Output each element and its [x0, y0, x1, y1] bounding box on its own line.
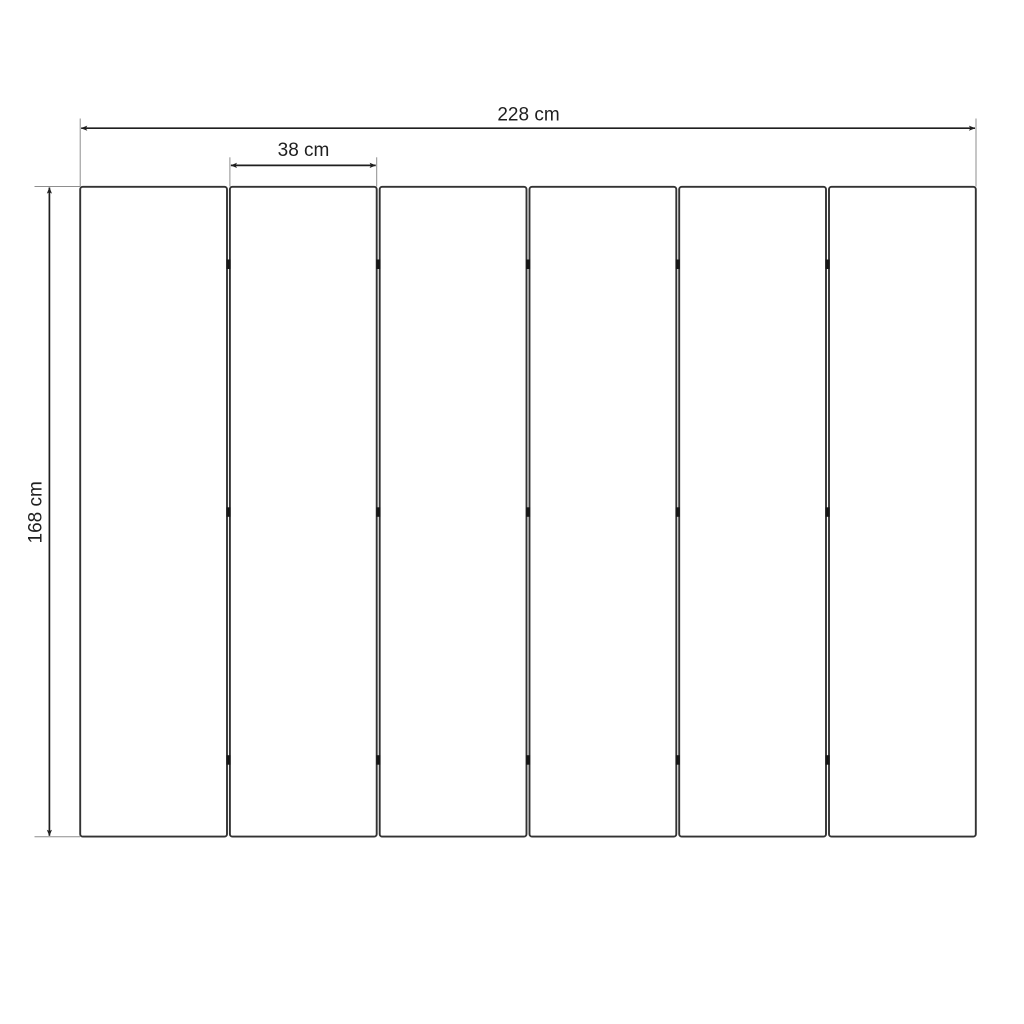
svg-text:38 cm: 38 cm	[278, 140, 330, 161]
svg-text:228 cm: 228 cm	[497, 105, 559, 126]
svg-text:168 cm: 168 cm	[26, 481, 47, 543]
